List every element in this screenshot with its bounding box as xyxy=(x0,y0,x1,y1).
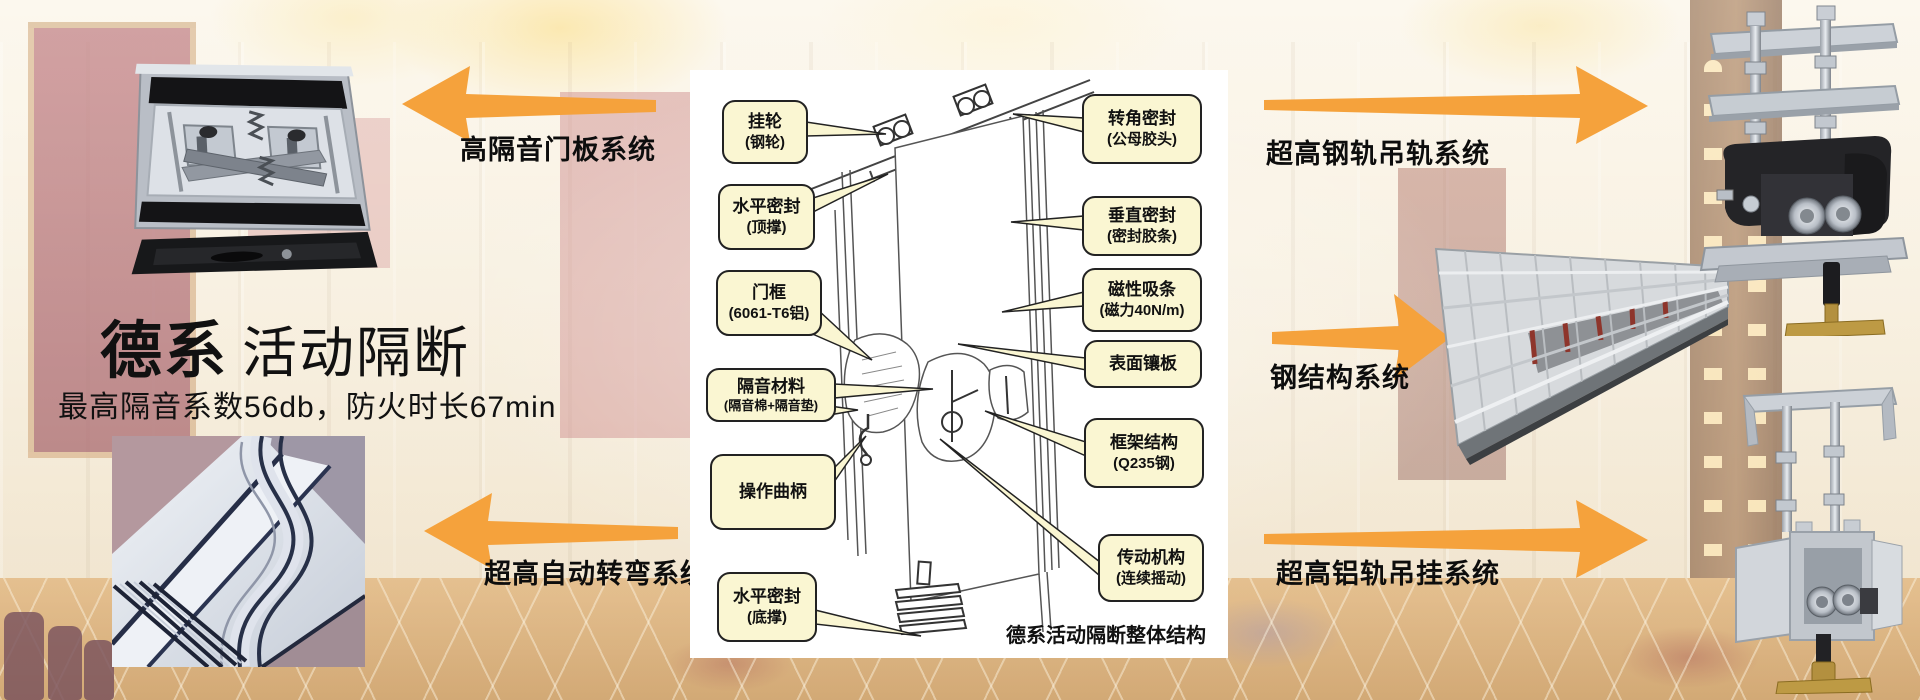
callout-text: 操作曲柄 xyxy=(739,481,807,503)
callout-text: (Q235钢) xyxy=(1113,454,1175,474)
label-steel-structure-system: 钢结构系统 xyxy=(1270,356,1410,395)
callout-text: 传动机构 xyxy=(1117,547,1185,569)
callout-text: 框架结构 xyxy=(1110,432,1178,454)
callout-text: (隔音棉+隔音垫) xyxy=(724,398,818,415)
label-steel-rail-system: 超高钢轨吊轨系统 xyxy=(1266,132,1490,171)
steel-structure-illustration xyxy=(1428,233,1738,468)
callout-surface-panel: 表面镶板 xyxy=(1084,340,1202,388)
callout-text: (磁力40N/m) xyxy=(1099,301,1184,321)
label-door-panel-system: 高隔音门板系统 xyxy=(460,128,656,167)
callout-text: (钢轮) xyxy=(745,133,785,153)
callout-hanging-wheel: 挂轮 (钢轮) xyxy=(722,100,808,164)
diagram-caption: 德系活动隔断整体结构 xyxy=(1006,619,1206,648)
callout-text: (公母胶头) xyxy=(1107,130,1177,150)
callout-operating-crank: 操作曲柄 xyxy=(710,454,836,530)
callout-corner-seal: 转角密封 (公母胶头) xyxy=(1082,94,1202,164)
brand-name: 德系 xyxy=(100,317,228,386)
callout-magnetic-strip: 磁性吸条 (磁力40N/m) xyxy=(1082,268,1202,332)
callout-text: 水平密封 xyxy=(733,586,801,608)
steel-structure-photo xyxy=(1428,233,1738,468)
callout-text: 水平密封 xyxy=(733,196,801,218)
poster-stage: 德系活动隔断 最高隔音系数56db，防火时长67min xyxy=(0,0,1920,700)
callout-text: (底撑) xyxy=(747,608,787,628)
callout-text: 垂直密封 xyxy=(1108,205,1176,227)
door-panel-mechanism-photo xyxy=(112,38,384,290)
product-subtitle: 最高隔音系数56db，防火时长67min xyxy=(58,382,556,426)
callout-text: (6061-T6铝) xyxy=(729,304,810,324)
foreground: 德系活动隔断 最高隔音系数56db，防火时长67min xyxy=(0,0,1920,700)
door-panel-mechanism-illustration xyxy=(112,38,384,290)
callout-text: (连续摇动) xyxy=(1116,569,1186,589)
callout-frame-structure: 框架结构 (Q235钢) xyxy=(1084,418,1204,488)
callout-horizontal-seal-bottom: 水平密封 (底撑) xyxy=(717,572,817,642)
callout-text: 门框 xyxy=(752,282,786,304)
aluminum-rail-trolley-illustration xyxy=(1722,382,1918,694)
callout-sound-insulation: 隔音材料 (隔音棉+隔音垫) xyxy=(706,368,836,422)
callout-horizontal-seal-top: 水平密封 (顶撑) xyxy=(718,184,815,250)
callout-transmission: 传动机构 (连续摇动) xyxy=(1098,534,1204,602)
curved-track-photo xyxy=(112,436,365,667)
callout-text: (顶撑) xyxy=(747,218,787,238)
callout-text: 转角密封 xyxy=(1108,108,1176,130)
product-name: 活动隔断 xyxy=(242,322,470,384)
callout-text: 挂轮 xyxy=(748,111,782,133)
aluminum-rail-trolley-photo xyxy=(1722,382,1918,694)
label-auto-turning-system: 超高自动转弯系统 xyxy=(484,552,708,591)
callout-text: 隔音材料 xyxy=(737,376,805,398)
structure-diagram-panel: 挂轮 (钢轮) 水平密封 (顶撑) 门框 (6061-T6铝) 隔音材料 (隔音… xyxy=(690,70,1228,658)
label-aluminum-rail-system: 超高铝轨吊挂系统 xyxy=(1276,552,1500,591)
curved-track-illustration xyxy=(112,436,365,667)
callout-text: 表面镶板 xyxy=(1109,353,1177,375)
steel-rail-trolley-illustration xyxy=(1695,4,1915,336)
callout-text: (密封胶条) xyxy=(1107,227,1177,247)
product-title: 德系活动隔断 xyxy=(100,300,470,390)
steel-rail-trolley-photo xyxy=(1695,4,1915,336)
callout-vertical-seal: 垂直密封 (密封胶条) xyxy=(1082,196,1202,256)
callout-door-frame: 门框 (6061-T6铝) xyxy=(716,270,822,336)
callout-text: 磁性吸条 xyxy=(1108,279,1176,301)
